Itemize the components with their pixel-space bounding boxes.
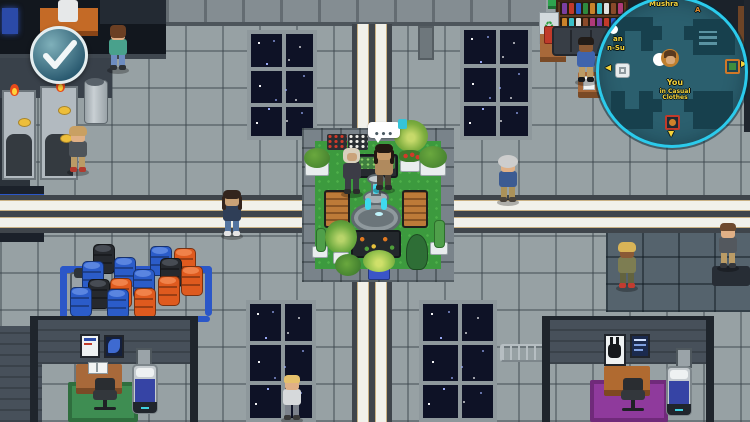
bed-foot-light: [675, 409, 683, 411]
minimap-poi-arcade-glyph: [669, 119, 676, 126]
star: [448, 311, 450, 313]
npc-torso: [283, 389, 301, 405]
star: [285, 89, 287, 91]
window-bar-h: [250, 341, 312, 345]
window-bar-h: [423, 341, 493, 345]
npc-shoe: [729, 263, 736, 268]
room-br-wall-left: [542, 316, 550, 422]
npc-hair: [498, 155, 518, 168]
bookshelf-row: [560, 2, 624, 15]
barrel-top: [84, 262, 100, 269]
npc-shoe: [353, 189, 360, 194]
barrel-rib: [71, 297, 89, 299]
star: [463, 401, 465, 403]
open-book-spine: [96, 362, 98, 372]
barrel-top: [112, 279, 128, 286]
npc-shoe: [619, 283, 626, 288]
star: [284, 366, 286, 368]
poster-blue-text-lines: [634, 349, 643, 351]
star: [500, 120, 502, 122]
npc-shoe: [224, 231, 231, 236]
star: [489, 97, 491, 99]
barrel-rib: [108, 307, 126, 309]
npc-shoe: [70, 167, 77, 172]
star: [258, 361, 260, 363]
star: [513, 42, 515, 44]
star: [272, 311, 274, 313]
barrel-top: [116, 258, 132, 265]
bed-pillow: [136, 368, 154, 377]
star: [432, 361, 434, 363]
star: [303, 75, 305, 77]
npc-curly-road[interactable]: [220, 190, 244, 240]
minimap-arrow-left: ◀: [605, 64, 611, 72]
fountain-water-jet: [365, 198, 371, 210]
gold-item: [58, 106, 71, 115]
star: [302, 350, 304, 352]
window-bar-h: [251, 67, 313, 71]
barrel-rib: [115, 267, 133, 269]
metal-railing: [500, 344, 546, 362]
npc-shoe: [344, 189, 351, 194]
minimap-arrow-down: ▼: [668, 130, 674, 138]
chat-bubble: •••: [368, 122, 400, 138]
npc-shoe: [587, 77, 594, 82]
leafy-plant: [335, 254, 361, 276]
fountain-water-jet: [381, 198, 387, 210]
barrel-top: [176, 249, 192, 256]
npc-hair: [223, 190, 241, 199]
window-bar-h: [464, 102, 528, 106]
office-chair-base: [622, 408, 644, 411]
poster-schedule-art: [84, 343, 92, 345]
poster-rabbit-body: [608, 344, 621, 358]
top-wall: [166, 0, 546, 26]
barrel-rib: [134, 279, 152, 281]
poster-blue-text: [630, 334, 650, 358]
minimap-poi-elevator-glyph: [619, 67, 626, 74]
npc-torso: [719, 237, 737, 253]
minimap-area-label-top: Mushra: [649, 1, 678, 8]
npc-olive-jacket[interactable]: [615, 242, 639, 292]
barrel-top: [183, 267, 199, 274]
book-spine: [569, 3, 574, 14]
trash-can-lid: [86, 78, 104, 86]
room-br-wall-right: [706, 316, 714, 422]
bed-blanket: [135, 379, 155, 402]
npc-shoe: [509, 197, 516, 202]
minimap-pillar: [649, 26, 662, 40]
npc-shoe: [628, 283, 635, 288]
book-spine: [583, 3, 588, 14]
star: [257, 313, 259, 315]
npc-torso: [69, 141, 87, 157]
fountain-sparkle: [375, 212, 383, 216]
window-bar-h: [423, 381, 493, 385]
wall-vent: [676, 348, 692, 368]
npc-hair: [284, 375, 300, 383]
star: [255, 403, 257, 405]
walkway-horizontal-left: [0, 195, 304, 233]
avatar-face: [666, 56, 675, 64]
barrel-top: [160, 277, 176, 284]
wooden-chair-right: [402, 190, 428, 228]
space-window: [247, 30, 317, 140]
star: [482, 108, 484, 110]
barrel-blue: [70, 287, 92, 317]
npc-hair: [618, 242, 636, 252]
furnace-door: [6, 134, 32, 176]
star: [258, 42, 260, 44]
star: [256, 122, 258, 124]
barrel-rib: [108, 299, 126, 301]
star: [472, 83, 474, 85]
star: [287, 332, 289, 334]
barrel-rib: [159, 294, 177, 296]
star: [499, 87, 501, 89]
star: [286, 120, 288, 122]
flame-icon: [58, 84, 63, 91]
poster-blue-text-lines: [634, 339, 646, 341]
minimap-area-label-top-right: A: [695, 7, 700, 14]
flame-icon: [12, 88, 17, 95]
bed-foot-light: [141, 407, 149, 409]
star: [469, 122, 471, 124]
barrel-orange: [134, 288, 156, 318]
npc-torso: [343, 163, 361, 179]
star: [301, 112, 303, 114]
pipe-rack-post: [60, 266, 67, 322]
star: [477, 317, 479, 319]
npc-khaki-walker[interactable]: [66, 126, 90, 176]
npc-shoe: [119, 65, 126, 70]
minimap[interactable]: ◀ ▶ ▼ an n-Su Mushra A You in Casual Clo…: [596, 0, 748, 148]
book-spine: [576, 3, 581, 14]
book-spine: [590, 3, 595, 14]
star: [471, 38, 473, 40]
minimap-player-status: in Casual Clothes: [651, 89, 699, 102]
dark-machinery: [100, 0, 166, 24]
book-spine: [618, 3, 623, 14]
barrel-rib: [182, 284, 200, 286]
barrel-rib: [83, 271, 101, 273]
space-window: [460, 26, 532, 140]
walkway-vertical-top: [352, 24, 392, 138]
window-bar-h: [251, 103, 313, 107]
star: [274, 377, 276, 379]
office-chair-seat: [621, 390, 645, 400]
bed-blanket: [669, 381, 689, 404]
star: [473, 377, 475, 379]
barrel-rib: [159, 286, 177, 288]
npc-garden-tan[interactable]: [372, 144, 396, 194]
minimap-arrow-right: ▶: [741, 60, 747, 68]
star: [480, 392, 482, 394]
barrel-blue: [107, 289, 129, 319]
checkmark-icon: [33, 29, 85, 81]
npc-shoe: [293, 415, 300, 420]
star: [502, 56, 504, 58]
star: [518, 73, 520, 75]
minimap-room-sw-cut: [625, 91, 639, 109]
npc-gray-hair-road[interactable]: [496, 156, 520, 206]
star: [298, 317, 300, 319]
cypress-plant: [406, 234, 428, 270]
star: [482, 350, 484, 352]
monitor-screen: [2, 8, 18, 34]
office-chair-base: [94, 407, 116, 410]
npc-face: [347, 153, 357, 161]
npc-hair: [375, 144, 393, 153]
spiky-plant: [363, 250, 395, 272]
barrel-top: [152, 247, 168, 254]
npc-shoe: [110, 65, 117, 70]
npc-bottom-blonde[interactable]: [280, 374, 304, 422]
minimap-npc-dot: [609, 25, 618, 34]
npc-shoe: [500, 197, 507, 202]
star: [299, 46, 301, 48]
minimap-stairs-icon: [699, 31, 717, 45]
npc-hair: [720, 223, 736, 231]
npc-hair: [110, 25, 126, 38]
barrel-top: [109, 290, 125, 297]
minimap-player-label: You: [599, 79, 748, 87]
barrel-top: [90, 280, 106, 287]
barrel-rib: [161, 268, 179, 270]
poster-blue-text-lines: [634, 344, 646, 346]
barrel-top: [135, 270, 151, 277]
star: [516, 112, 518, 114]
poster-schedule-art: [84, 338, 96, 341]
pipe-rack-post: [205, 266, 212, 316]
barrel-orange: [181, 266, 203, 296]
bush-plant: [419, 146, 447, 168]
barrel-rib: [182, 276, 200, 278]
red-flowers: [399, 150, 421, 162]
npc-hair: [578, 37, 594, 45]
npc-right-edge[interactable]: [716, 222, 740, 272]
npc-shoe: [385, 185, 392, 190]
star: [275, 99, 277, 101]
star: [431, 313, 433, 315]
star: [461, 366, 463, 368]
star: [265, 337, 267, 339]
room-bl-wall-right: [190, 316, 198, 422]
barrel-top: [72, 288, 88, 295]
star: [268, 108, 270, 110]
barrel-top: [95, 245, 111, 252]
minimap-pillar: [684, 26, 697, 40]
couch-cushion-line: [570, 30, 572, 52]
gold-item: [18, 118, 31, 127]
minimap-player-avatar[interactable]: [661, 49, 679, 67]
star: [487, 36, 489, 38]
npc-teal-shirt[interactable]: [106, 24, 130, 74]
npc-shoe: [79, 167, 86, 172]
star: [480, 61, 482, 63]
bush-plant: [304, 148, 330, 168]
book-spine: [604, 3, 609, 14]
barrel-rib: [115, 275, 133, 277]
star: [443, 388, 445, 390]
minimap-room-nw-cut: [625, 31, 641, 51]
star: [266, 63, 268, 65]
npc-torso: [577, 51, 595, 67]
npc-torso: [109, 39, 127, 55]
star: [440, 337, 442, 339]
npc-shoe: [233, 231, 240, 236]
walkway-vertical-bottom: [352, 272, 392, 422]
minimap-npc-label-2: n-Su: [607, 45, 625, 52]
npc-shop-clerk[interactable]: [574, 36, 598, 86]
star: [267, 388, 269, 390]
book-spine: [562, 3, 567, 14]
palm-plant: [325, 220, 357, 254]
barrel-rib: [135, 306, 153, 308]
star: [428, 403, 430, 405]
star: [259, 85, 261, 87]
barrel-top: [136, 289, 152, 296]
star: [465, 332, 467, 334]
npc-hair: [69, 126, 87, 136]
office-chair-seat: [93, 390, 117, 400]
book-spine: [611, 3, 616, 14]
barrel-rib: [94, 254, 112, 256]
cactus: [434, 220, 445, 248]
book-spine: [597, 3, 602, 14]
minimap-room-se: [693, 91, 733, 129]
npc-shoe: [284, 415, 291, 420]
chat-typing-tag: [398, 119, 407, 129]
window-bar-v: [458, 304, 462, 418]
star: [510, 97, 512, 99]
npc-shoe: [376, 185, 383, 190]
star: [451, 377, 453, 379]
star: [288, 59, 290, 61]
chat-bubble-tail: [374, 137, 382, 143]
window-bar-h: [464, 64, 528, 68]
walkway-horizontal-right: [448, 195, 750, 233]
barrel-top: [162, 259, 178, 266]
barrel-rib: [71, 305, 89, 307]
npc-torso: [618, 257, 636, 273]
trash-can: [84, 80, 108, 124]
npc-torso: [499, 171, 517, 187]
poster-art-blue-swirl: [108, 339, 120, 353]
npc-shoe: [720, 263, 727, 268]
minimap-poi-shop-glyph: [729, 63, 736, 70]
ready-check-button[interactable]: [30, 26, 88, 84]
star: [273, 40, 275, 42]
space-window: [419, 300, 497, 422]
npc-garden-hooded[interactable]: [340, 148, 364, 198]
room-bl-wall-left: [30, 316, 38, 422]
barrel-rib: [135, 298, 153, 300]
game-viewport: ♻: [0, 0, 750, 422]
minimap-npc-label-1: an: [613, 36, 623, 43]
npc-shoe: [578, 77, 585, 82]
barrel-orange: [158, 276, 180, 306]
pillar: [418, 26, 434, 60]
bed-pillow: [670, 370, 688, 379]
white-appliance: [58, 0, 78, 22]
open-book: [88, 362, 108, 374]
star: [295, 99, 297, 101]
